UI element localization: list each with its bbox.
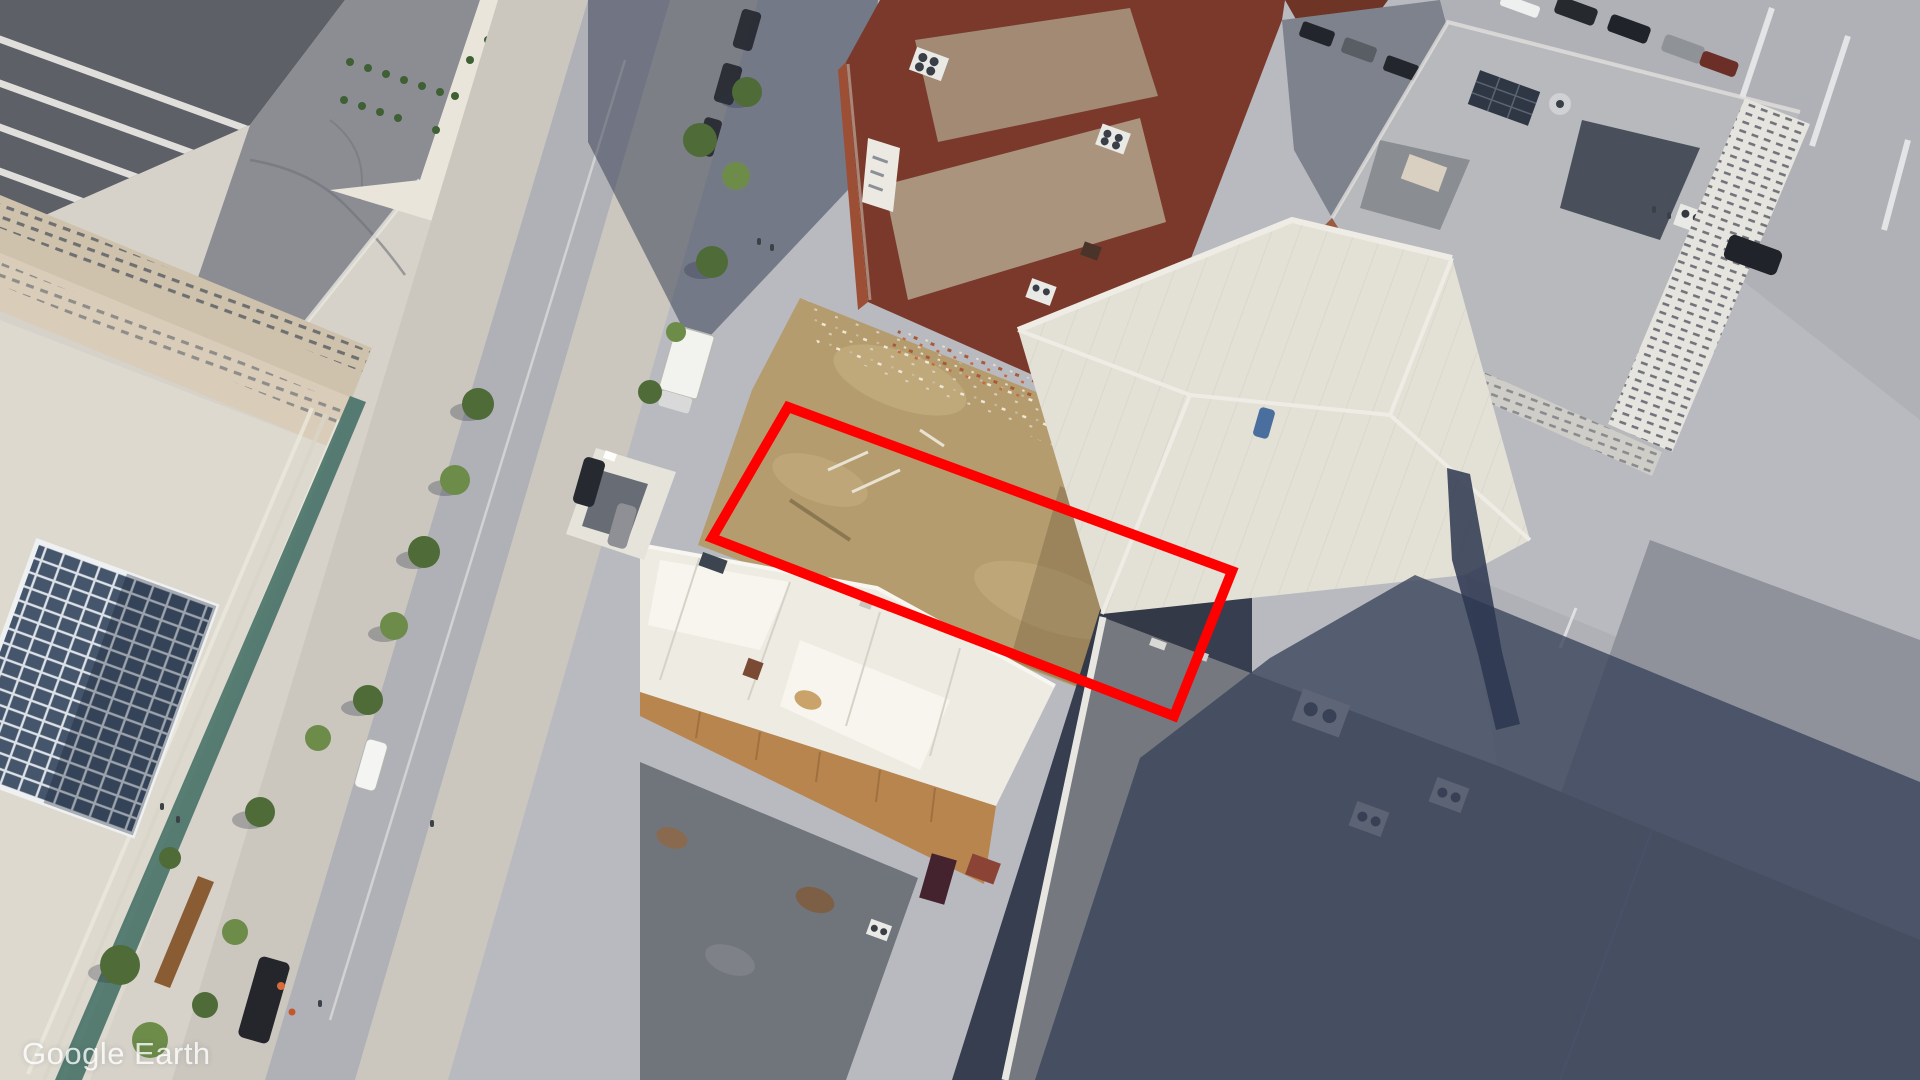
- aerial-imagery: [0, 0, 1920, 1080]
- person-orange: [289, 1009, 296, 1016]
- google-earth-viewport[interactable]: Google Earth: [0, 0, 1920, 1080]
- google-earth-watermark: Google Earth: [22, 1036, 211, 1072]
- person-orange: [277, 982, 285, 990]
